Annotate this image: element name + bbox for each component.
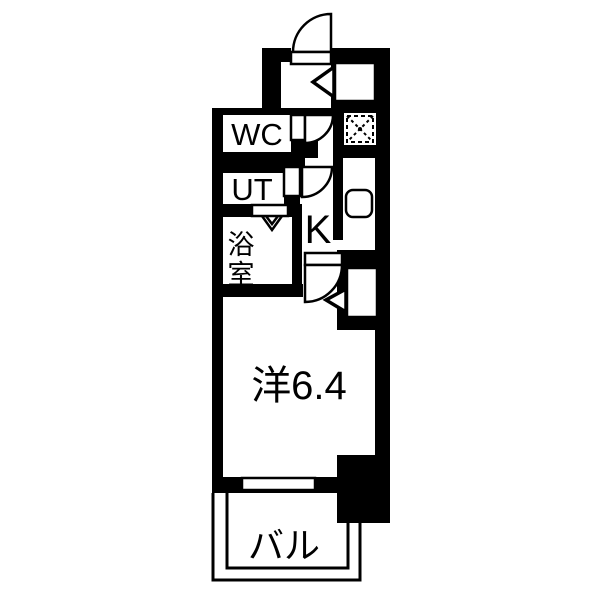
wc-door-leaf: [291, 115, 305, 140]
refrigerator-space-icon: [344, 113, 376, 145]
wall-segment: [288, 204, 302, 217]
balcony-label: バル: [248, 525, 320, 566]
kitchen-sink-icon: [346, 190, 372, 217]
wall-segment: [262, 48, 281, 110]
floor-plan: WC UT 浴 室 K 洋6.4 バル: [0, 0, 600, 600]
western-room-label: 洋6.4: [251, 364, 347, 408]
kitchen-label: K: [305, 208, 332, 252]
ut-door-leaf: [284, 167, 300, 196]
entry-door-leaf: [291, 52, 331, 64]
wall-segment: [212, 297, 223, 493]
closet: [347, 268, 377, 317]
shoe-cabinet: [335, 63, 375, 101]
wall-segment: [292, 217, 302, 285]
wall-segment: [337, 455, 390, 523]
bathroom-label-char2: 室: [228, 260, 255, 290]
wall-segment: [284, 196, 300, 205]
window: [242, 478, 315, 490]
wall-segment: [300, 152, 305, 168]
room-door-leaf: [305, 253, 342, 265]
bathroom-label-char1: 浴: [228, 230, 255, 260]
wall-segment: [212, 284, 303, 297]
wc-label: WC: [231, 117, 283, 152]
background: [0, 0, 600, 600]
wall-segment: [333, 155, 343, 240]
ut-label: UT: [231, 172, 272, 207]
